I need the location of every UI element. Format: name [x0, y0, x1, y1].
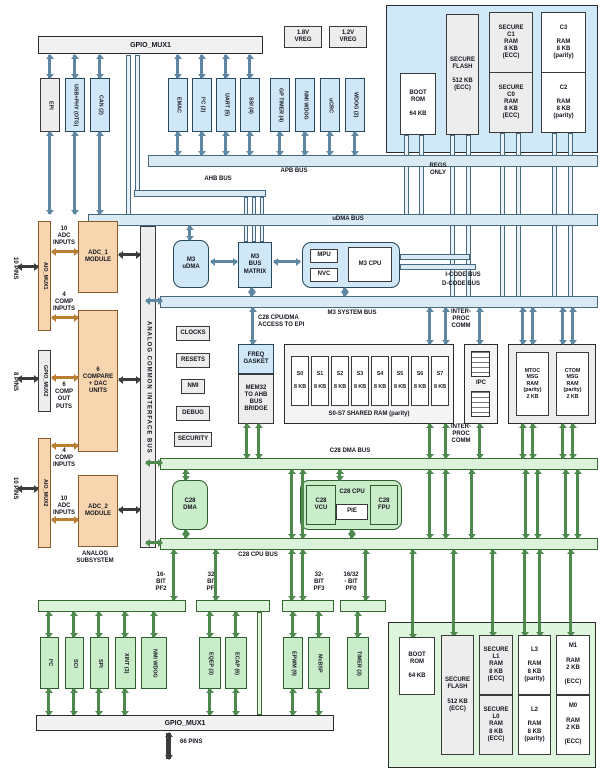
v-arrow — [184, 470, 187, 480]
udma-bus-label: uDMA BUS — [326, 216, 370, 223]
adc1-inputs-label: 10 ADC INPUTS — [50, 226, 78, 248]
v-arrow — [176, 132, 179, 155]
v-arrow — [521, 308, 524, 344]
interproc-comm-bottom-label: INTER- PROC COMM — [446, 424, 476, 446]
v-arrow — [531, 424, 534, 458]
v-arrow — [428, 470, 431, 538]
v-arrow — [564, 470, 567, 538]
shared-ram-cell: S7 8 KB — [431, 356, 449, 406]
c28-dma: C28 DMA — [172, 480, 208, 530]
peripheral-usb-phy: USB+PHY (OTG) — [65, 78, 85, 132]
v-arrow — [536, 470, 539, 538]
v-arrow — [47, 689, 50, 715]
v-arrow — [188, 226, 191, 240]
mem32-ahb-bridge: MEM32 TO AHB BUS BRIDGE — [238, 374, 274, 424]
comp-outputs-label: 6 COMP OUT PUTS — [50, 382, 78, 411]
peripheral-xint: XINT (3) — [115, 637, 136, 689]
peripheral-ecap: ECAP (6) — [225, 637, 247, 689]
peripheral-wdog: WDOG (2) — [345, 78, 365, 132]
v-arrow — [350, 530, 353, 538]
v-arrow — [571, 308, 574, 344]
peripheral-ucrc: uCRC — [320, 78, 340, 132]
v-arrow — [250, 288, 253, 296]
v-arrow — [152, 612, 155, 637]
shared-ram-cell: S3 8 KB — [351, 356, 369, 406]
c28-secure-l0-ram: SECURE L0 RAM 8 KB (ECC) — [479, 695, 513, 755]
v-arrow — [524, 470, 527, 538]
h-arrow — [18, 377, 38, 380]
peripheral-emac: EMAC — [168, 78, 188, 132]
v-arrow — [428, 424, 431, 458]
shared-ram-cell: S1 8 KB — [311, 356, 329, 406]
shared-ram-cell: S5 8 KB — [391, 356, 409, 406]
v-arrow — [301, 550, 304, 600]
shared-ram-cell: S6 8 KB — [411, 356, 429, 406]
v-arrow — [428, 308, 431, 344]
icode-bus-label: I-CODE BUS — [438, 272, 488, 279]
peripheral-can: CAN (2) — [90, 78, 110, 132]
vreg-1v8: 1.8V VREG — [284, 26, 322, 48]
gpio-ahb-line — [135, 55, 140, 191]
comp-inputs-bottom-label: 4 COMP INPUTS — [50, 448, 78, 470]
v-arrow — [478, 424, 481, 458]
comp-inputs-top-label: 4 COMP INPUTS — [50, 292, 78, 314]
v-arrow — [97, 612, 100, 637]
debug-block: DEBUG — [176, 406, 210, 421]
v-arrow — [248, 132, 251, 155]
c28-secure-flash: SECURE FLASH 512 KB (ECC) — [441, 635, 474, 755]
v-arrow — [411, 550, 414, 638]
peripheral-mcbsp: McBSP — [308, 637, 330, 689]
c28-access-epi-label: C28 CPU/DMA ACCESS TO EPI — [258, 315, 314, 329]
v-arrow — [123, 612, 126, 637]
v-arrow — [257, 424, 260, 458]
v-arrow — [251, 308, 254, 344]
peripheral-i2c-c28: I²C — [40, 637, 59, 689]
peripheral-uart: UART (5) — [216, 78, 236, 132]
c28-cpu-bus-label: C28 CPU BUS — [228, 552, 288, 559]
h-arrow — [18, 487, 38, 490]
pf0-label: 16/32 - BIT PF0 — [338, 572, 364, 594]
v-arrow — [444, 470, 447, 538]
m3-secure-c0-ram: SECURE C0 RAM 8 KB (ECC) — [489, 72, 533, 133]
v-arrow — [224, 55, 227, 78]
v-arrow — [576, 470, 579, 538]
mtoc-msg-ram: MTOC MSG RAM (parity) 2 KB — [516, 352, 549, 416]
peripheral-nmi-wdog: NMI WDOG — [295, 78, 315, 132]
m3-cpu: M3 CPU — [348, 247, 392, 282]
peripheral-eqep: EQEP (3) — [199, 637, 221, 689]
h-arrow — [52, 518, 78, 521]
v-arrow — [538, 550, 541, 636]
v-arrow — [208, 689, 211, 715]
v-arrow — [561, 424, 564, 458]
v-arrow — [176, 55, 179, 78]
v-arrow — [452, 550, 455, 636]
c28-fpu: C28 FPU — [370, 485, 398, 525]
security-block: SECURITY — [174, 432, 212, 447]
c28-vcu: C28 VCU — [306, 485, 336, 525]
clocks-block: CLOCKS — [176, 326, 210, 341]
h-arrow — [211, 260, 237, 263]
compare-dac-units: 6 COMPARE + DAC UNITS — [78, 310, 118, 452]
h-arrow — [52, 444, 78, 447]
m3-c2-ram: C2 RAM 8 KB (parity) — [541, 72, 586, 133]
v-arrow — [491, 550, 494, 636]
peripheral-epi: EPI — [40, 78, 60, 132]
v-arrow — [73, 55, 76, 78]
adc2-module: ADC_2 MODULE — [78, 475, 118, 547]
v-arrow — [569, 550, 572, 636]
vreg-1v2: 1.2V VREG — [329, 26, 367, 48]
shared-ram-cell: S2 8 KB — [331, 356, 349, 406]
v-arrow — [303, 132, 306, 155]
ctom-msg-ram: CTOM MSG RAM (parity) 2 KB — [556, 352, 589, 416]
aio-mux2: AIO_MUX2 — [38, 438, 51, 548]
shared-ram-cell: S4 8 KB — [371, 356, 389, 406]
v-arrow — [98, 55, 101, 78]
v-arrow — [72, 612, 75, 637]
shared-ram-caption: S0-S7 SHARED RAM (parity) — [284, 411, 454, 418]
v-arrow — [200, 55, 203, 78]
resets-block: RESETS — [176, 353, 210, 368]
c28-m1-ram: M1 RAM 2 KB (ECC) — [556, 635, 590, 695]
v-arrow — [184, 530, 187, 538]
v-arrow — [561, 308, 564, 344]
v-arrow — [172, 550, 175, 600]
v-arrow — [234, 689, 237, 715]
v-arrow — [278, 132, 281, 155]
v-arrow — [97, 689, 100, 715]
gpio-connect-line — [257, 612, 262, 715]
c28-dma-bus — [160, 458, 598, 470]
c28-cpu-bus — [160, 538, 598, 550]
pins66-label: 66 PINS — [180, 739, 214, 746]
v-arrow — [343, 288, 346, 296]
v-arrow — [73, 132, 76, 214]
ipc-register-block — [471, 391, 490, 417]
v-arrow — [478, 308, 481, 344]
adc2-inputs-label: 10 ADC INPUTS — [50, 496, 78, 518]
v-arrow — [353, 132, 356, 155]
pf1-label: 32- BIT PF1 — [201, 572, 223, 594]
h-arrow — [18, 265, 38, 268]
apb-bus — [148, 155, 598, 167]
v-arrow — [317, 689, 320, 715]
v-arrow — [72, 689, 75, 715]
m3-system-bus-label: M3 SYSTEM BUS — [322, 310, 382, 317]
m3-c3-ram: C3 RAM 8 KB (parity) — [541, 12, 586, 73]
pf2-label: 16- BIT PF2 — [150, 572, 172, 594]
v-arrow — [47, 612, 50, 637]
shared-ram-cell: S0 8 KB — [291, 356, 309, 406]
h-arrow — [146, 299, 162, 302]
v-arrow — [214, 550, 217, 600]
nmi-block: NMI — [181, 379, 205, 394]
h-arrow — [274, 260, 300, 263]
analog-common-interface-bus: ANALOG COMMON INTERFACE BUS — [140, 226, 156, 548]
h-arrow — [119, 378, 140, 381]
c28-m0-ram: M0 RAM 2 KB (ECC) — [556, 695, 590, 755]
v-arrow — [200, 132, 203, 155]
c28-pie: PIE — [336, 504, 368, 520]
ipc-register-block — [471, 351, 490, 377]
h-arrow — [52, 376, 78, 379]
m3-nvc: NVC — [310, 268, 338, 282]
v-arrow — [123, 689, 126, 715]
v-arrow — [356, 612, 359, 637]
v-arrow — [290, 470, 293, 538]
c28-secure-l1-ram: SECURE L1 RAM 8 KB (ECC) — [479, 635, 513, 695]
v-arrow — [166, 733, 171, 759]
m3-udma: M3 uDMA — [173, 240, 209, 288]
dcode-bus-label: D-CODE BUS — [436, 281, 486, 288]
analog-subsystem-label: ANALOG SUBSYSTEM — [52, 551, 138, 565]
apb-bus-label: APB BUS — [276, 168, 312, 175]
v-arrow — [301, 470, 304, 538]
v-arrow — [48, 55, 51, 78]
pf3-label: 32- BIT PF3 — [308, 572, 330, 594]
v-arrow — [224, 132, 227, 155]
v-arrow — [571, 424, 574, 458]
v-arrow — [523, 550, 526, 636]
h-arrow — [119, 253, 140, 256]
c28-l3-ram: L3 RAM 8 KB (parity) — [518, 635, 551, 695]
c28-l2-ram: L2 RAM 8 KB (parity) — [518, 695, 551, 755]
peripheral-nmi-wdog-c28: NMI WDOG — [141, 637, 167, 689]
adc1-module: ADC_1 MODULE — [78, 221, 118, 293]
pf0-bus — [340, 600, 386, 612]
regs-only-label: REGS ONLY — [424, 163, 452, 177]
peripheral-gp-timer: GP TIMER (4) — [270, 78, 290, 132]
bootrom-regs-line — [404, 135, 409, 215]
h-arrow — [146, 461, 162, 464]
h-arrow — [146, 541, 162, 544]
m3-secure-flash: SECURE FLASH 512 KB (ECC) — [446, 14, 479, 135]
peripheral-i2c: I²C (2) — [192, 78, 212, 132]
pf2-bus — [38, 600, 186, 612]
peripheral-spi: SPI — [90, 637, 109, 689]
peripheral-timer: TIMER (3) — [347, 637, 369, 689]
peripheral-ssi: SSI (4) — [240, 78, 260, 132]
h-arrow — [119, 508, 140, 511]
v-arrow — [48, 132, 51, 214]
v-arrow — [364, 550, 367, 600]
v-arrow — [317, 612, 320, 637]
gpio-mux1-top-bar: GPIO_MUX1 — [38, 36, 263, 54]
v-arrow — [291, 612, 294, 637]
ahb-bus-label: AHB BUS — [200, 176, 236, 183]
v-arrow — [531, 308, 534, 344]
v-arrow — [234, 612, 237, 637]
peripheral-sci: SCI — [65, 637, 84, 689]
v-arrow — [328, 132, 331, 155]
v-arrow — [470, 470, 473, 538]
v-arrow — [290, 550, 293, 600]
h-arrow — [52, 316, 78, 319]
dcode-bus-bar — [400, 264, 476, 270]
gpio-ahb-line — [126, 55, 131, 215]
v-arrow — [245, 424, 248, 458]
c28-dma-bus-label: C28 DMA BUS — [320, 448, 380, 455]
icode-bus-bar — [400, 254, 470, 260]
m3-mpu: MPU — [310, 249, 338, 263]
v-arrow — [338, 470, 341, 480]
v-arrow — [521, 424, 524, 458]
m3-boot-rom: BOOT ROM 64 KB — [400, 73, 436, 135]
v-arrow — [291, 689, 294, 715]
c28-boot-rom: BOOT ROM 64 KB — [399, 637, 435, 695]
block-diagram: APB BUS AHB BUS REGS ONLY uDMA BUS M3 SY… — [0, 0, 600, 771]
v-arrow — [208, 612, 211, 637]
v-arrow — [248, 55, 251, 78]
gpio-mux1-bottom-bar: GPIO_MUX1 — [36, 715, 334, 731]
peripheral-epwm: EPWM (9) — [283, 637, 303, 689]
c28-cpu-label: C28 CPU — [336, 489, 368, 496]
m3-bus-matrix: M3 BUS MATRIX — [238, 242, 272, 288]
v-arrow — [98, 132, 101, 214]
m3-secure-c1-ram: SECURE C1 RAM 8 KB (ECC) — [489, 12, 533, 73]
h-arrow — [52, 250, 78, 253]
interproc-comm-top-label: INTER- PROC COMM — [446, 309, 476, 331]
ipc-label: IPC — [464, 380, 498, 387]
ahb-bus-bar — [134, 190, 266, 197]
freq-gasket: FREQ GASKET — [238, 344, 274, 374]
